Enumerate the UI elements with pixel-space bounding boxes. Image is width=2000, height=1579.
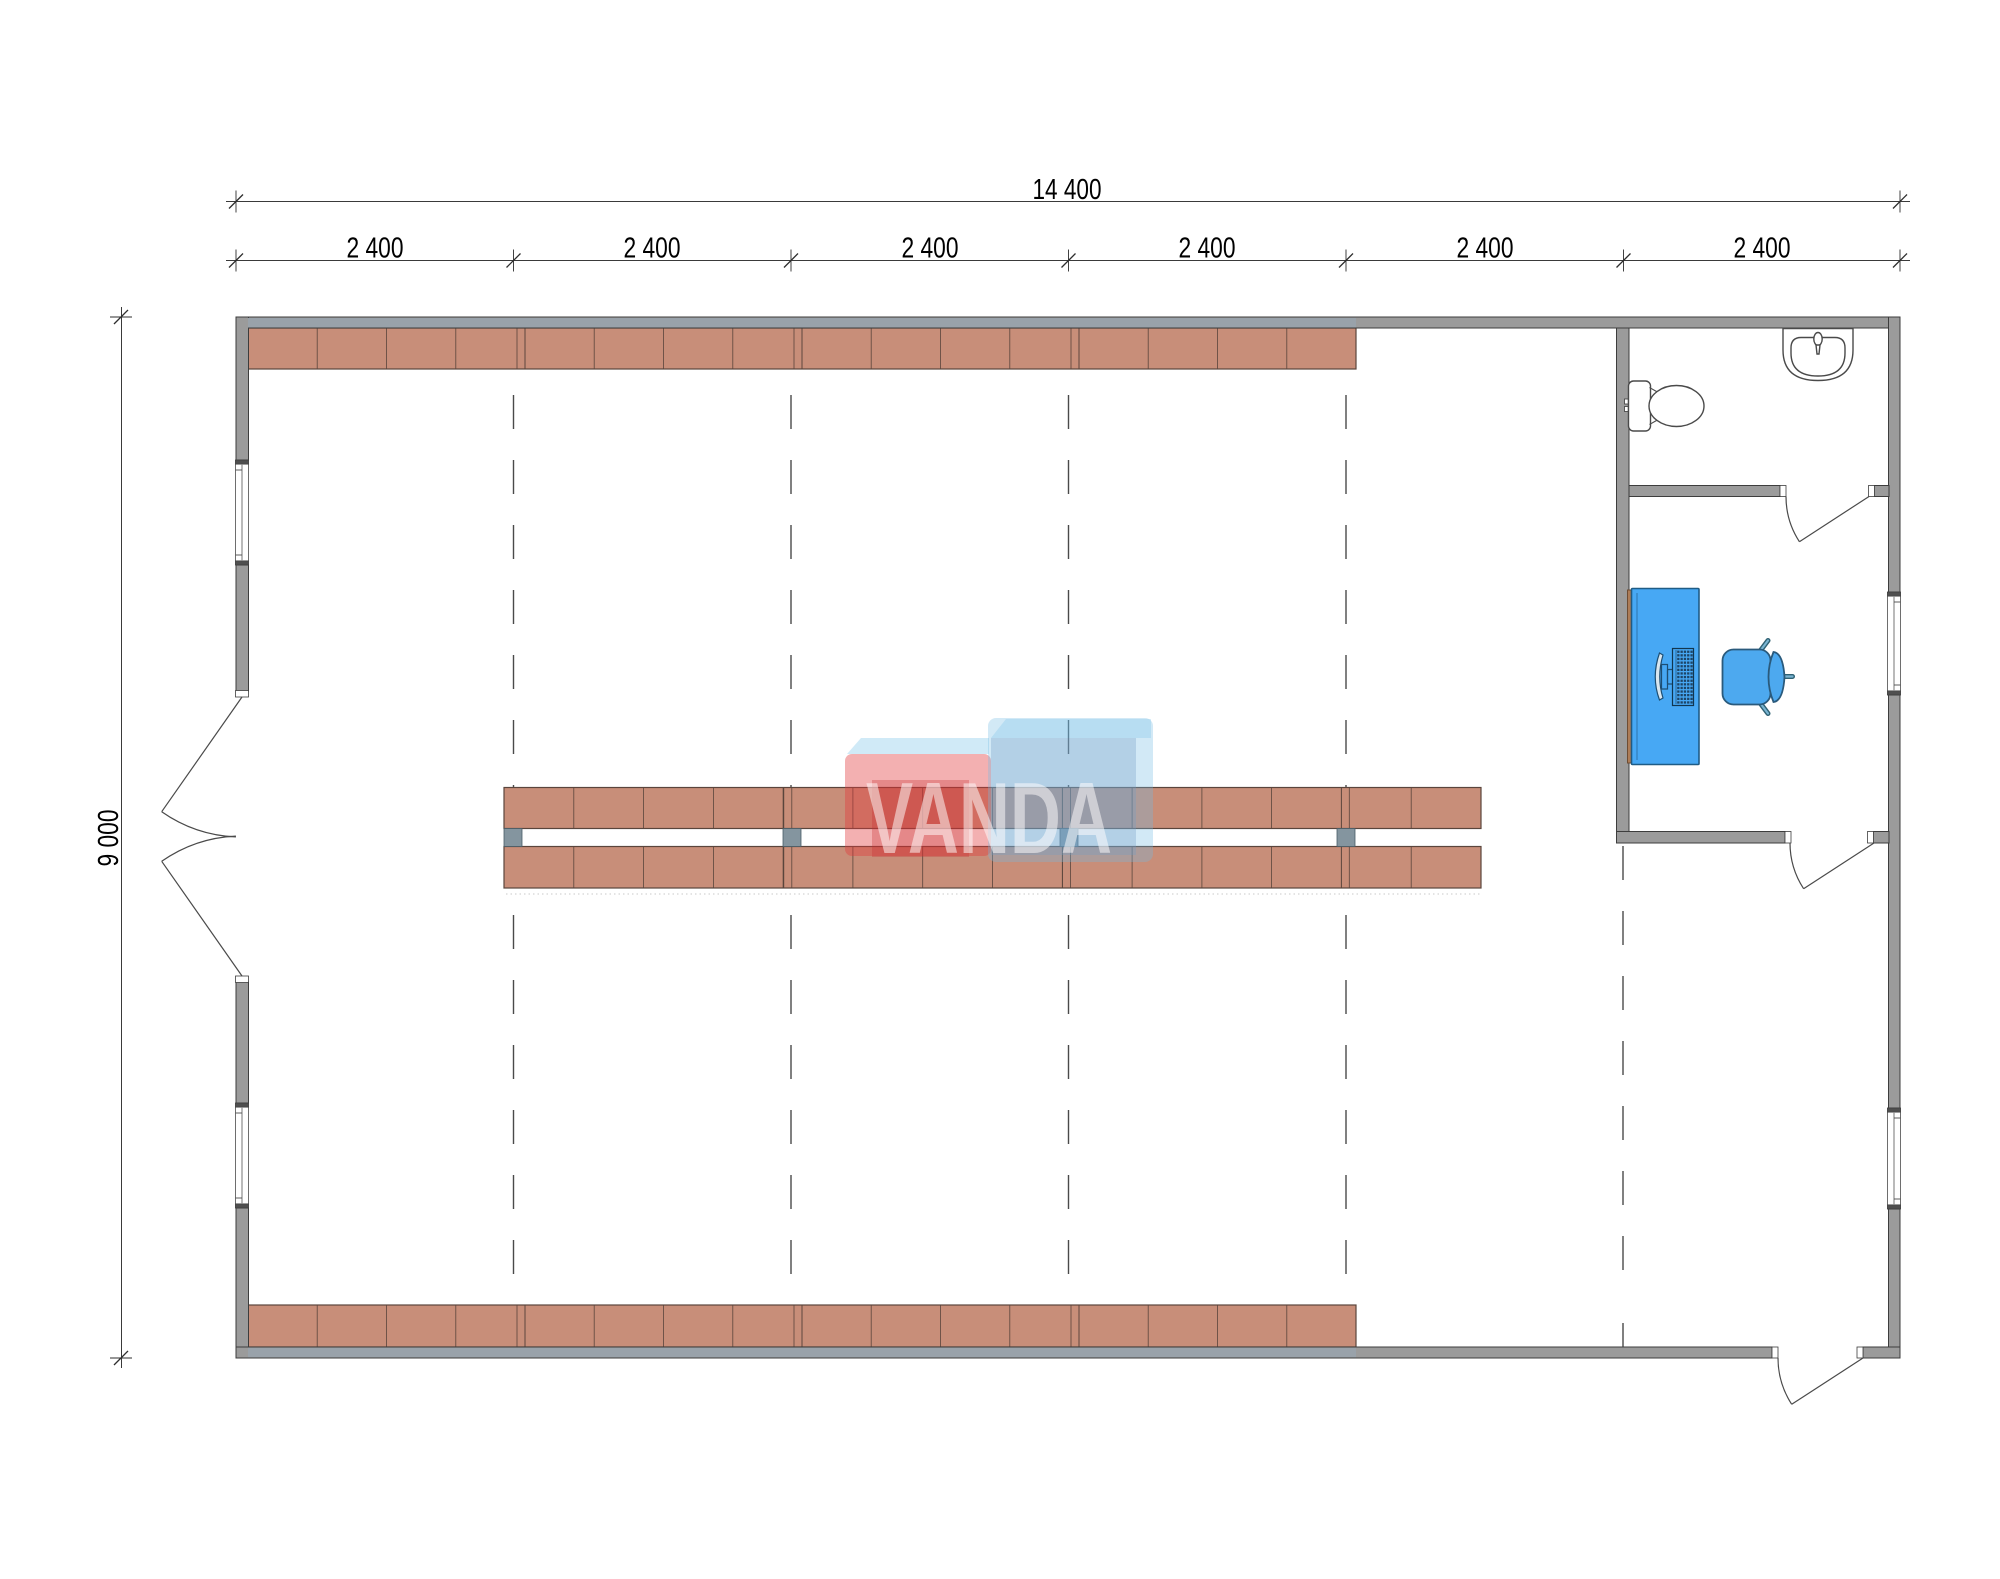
svg-text:2 400: 2 400 (347, 233, 404, 265)
svg-text:9 000: 9 000 (93, 810, 125, 867)
svg-text:14 400: 14 400 (1033, 174, 1102, 206)
svg-text:2 400: 2 400 (1457, 233, 1514, 265)
svg-text:2 400: 2 400 (1734, 233, 1791, 265)
svg-text:2 400: 2 400 (624, 233, 681, 265)
svg-text:2 400: 2 400 (1179, 233, 1236, 265)
svg-text:2 400: 2 400 (902, 233, 959, 265)
svg-text:VANDA: VANDA (866, 763, 1112, 875)
